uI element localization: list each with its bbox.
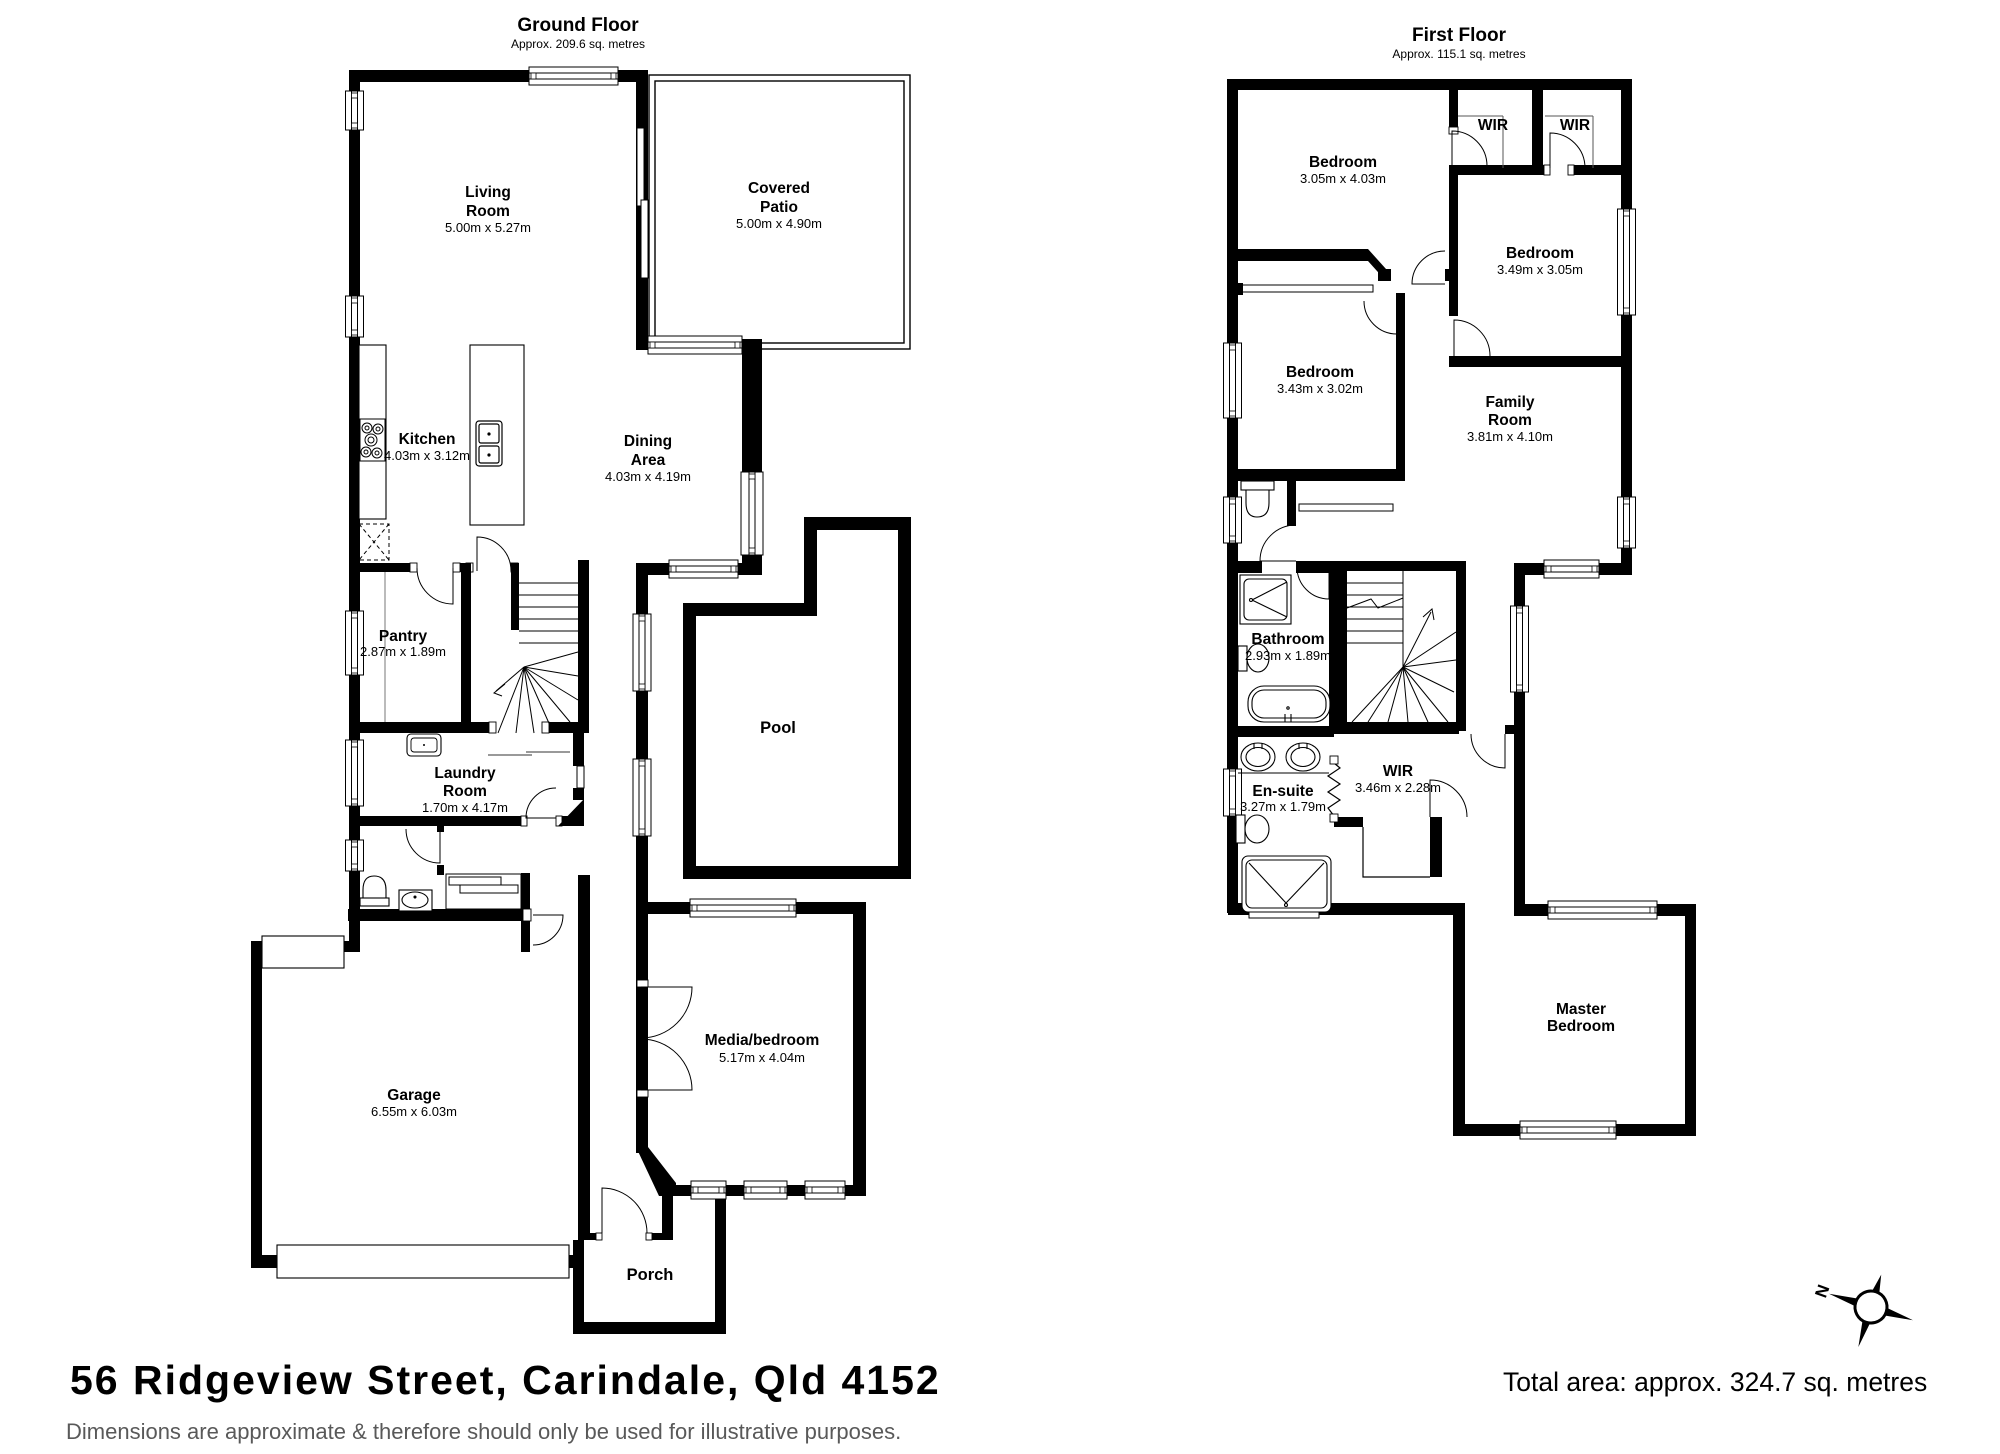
svg-text:Laundry: Laundry xyxy=(434,765,496,782)
svg-text:3.81m x 4.10m: 3.81m x 4.10m xyxy=(1467,429,1553,444)
svg-text:3.46m x 2.28m: 3.46m x 2.28m xyxy=(1355,780,1441,795)
svg-text:Kitchen: Kitchen xyxy=(399,431,456,448)
svg-text:Family: Family xyxy=(1485,394,1534,411)
svg-text:2.93m x 1.89m: 2.93m x 1.89m xyxy=(1245,648,1331,663)
svg-text:WIR: WIR xyxy=(1478,117,1508,134)
svg-text:Approx. 115.1 sq. metres: Approx. 115.1 sq. metres xyxy=(1392,47,1525,61)
svg-text:56 Ridgeview Street, Carindale: 56 Ridgeview Street, Carindale, Qld 4152 xyxy=(70,1357,941,1403)
svg-text:Bedroom: Bedroom xyxy=(1506,245,1574,262)
svg-text:Total area: approx. 324.7 sq.: Total area: approx. 324.7 sq. metres xyxy=(1503,1367,1927,1397)
svg-text:Bedroom: Bedroom xyxy=(1309,154,1377,171)
svg-text:3.43m x 3.02m: 3.43m x 3.02m xyxy=(1277,381,1363,396)
svg-text:Approx. 209.6 sq. metres: Approx. 209.6 sq. metres xyxy=(511,37,645,51)
svg-text:Media/bedroom: Media/bedroom xyxy=(705,1032,820,1049)
svg-text:Room: Room xyxy=(443,783,487,800)
svg-text:Area: Area xyxy=(631,452,666,469)
svg-text:5.00m x 4.90m: 5.00m x 4.90m xyxy=(736,216,822,231)
svg-text:WIR: WIR xyxy=(1383,763,1413,780)
svg-text:2.87m x 1.89m: 2.87m x 1.89m xyxy=(360,644,446,659)
svg-text:Master: Master xyxy=(1556,1001,1606,1018)
svg-text:3.05m x 4.03m: 3.05m x 4.03m xyxy=(1300,171,1386,186)
svg-text:Pool: Pool xyxy=(760,719,796,737)
svg-text:6.55m x 6.03m: 6.55m x 6.03m xyxy=(371,1104,457,1119)
svg-text:WIR: WIR xyxy=(1560,117,1590,134)
svg-text:Pantry: Pantry xyxy=(379,628,428,645)
svg-text:1.70m x 4.17m: 1.70m x 4.17m xyxy=(422,800,508,815)
svg-text:Porch: Porch xyxy=(627,1266,674,1284)
svg-text:Ground Floor: Ground Floor xyxy=(517,15,639,36)
svg-text:5.00m x 5.27m: 5.00m x 5.27m xyxy=(445,220,531,235)
svg-text:4.03m x 3.12m: 4.03m x 3.12m xyxy=(384,448,470,463)
svg-text:3.27m x 1.79m: 3.27m x 1.79m xyxy=(1240,799,1326,814)
svg-text:Dimensions are approximate & t: Dimensions are approximate & therefore s… xyxy=(66,1419,901,1444)
svg-text:4.03m x 4.19m: 4.03m x 4.19m xyxy=(605,469,691,484)
svg-text:Room: Room xyxy=(466,203,510,220)
svg-text:Covered: Covered xyxy=(748,180,810,197)
svg-text:Room: Room xyxy=(1488,412,1532,429)
svg-text:Living: Living xyxy=(465,184,511,201)
svg-text:Patio: Patio xyxy=(760,199,798,216)
svg-text:Garage: Garage xyxy=(387,1087,441,1104)
svg-text:5.17m x 4.04m: 5.17m x 4.04m xyxy=(719,1050,805,1065)
svg-text:3.49m x 3.05m: 3.49m x 3.05m xyxy=(1497,262,1583,277)
svg-text:First Floor: First Floor xyxy=(1412,25,1507,46)
svg-text:Bathroom: Bathroom xyxy=(1251,631,1324,648)
svg-text:Dining: Dining xyxy=(624,433,672,450)
svg-text:Bedroom: Bedroom xyxy=(1547,1018,1615,1035)
svg-text:Bedroom: Bedroom xyxy=(1286,364,1354,381)
svg-text:En-suite: En-suite xyxy=(1252,783,1314,800)
